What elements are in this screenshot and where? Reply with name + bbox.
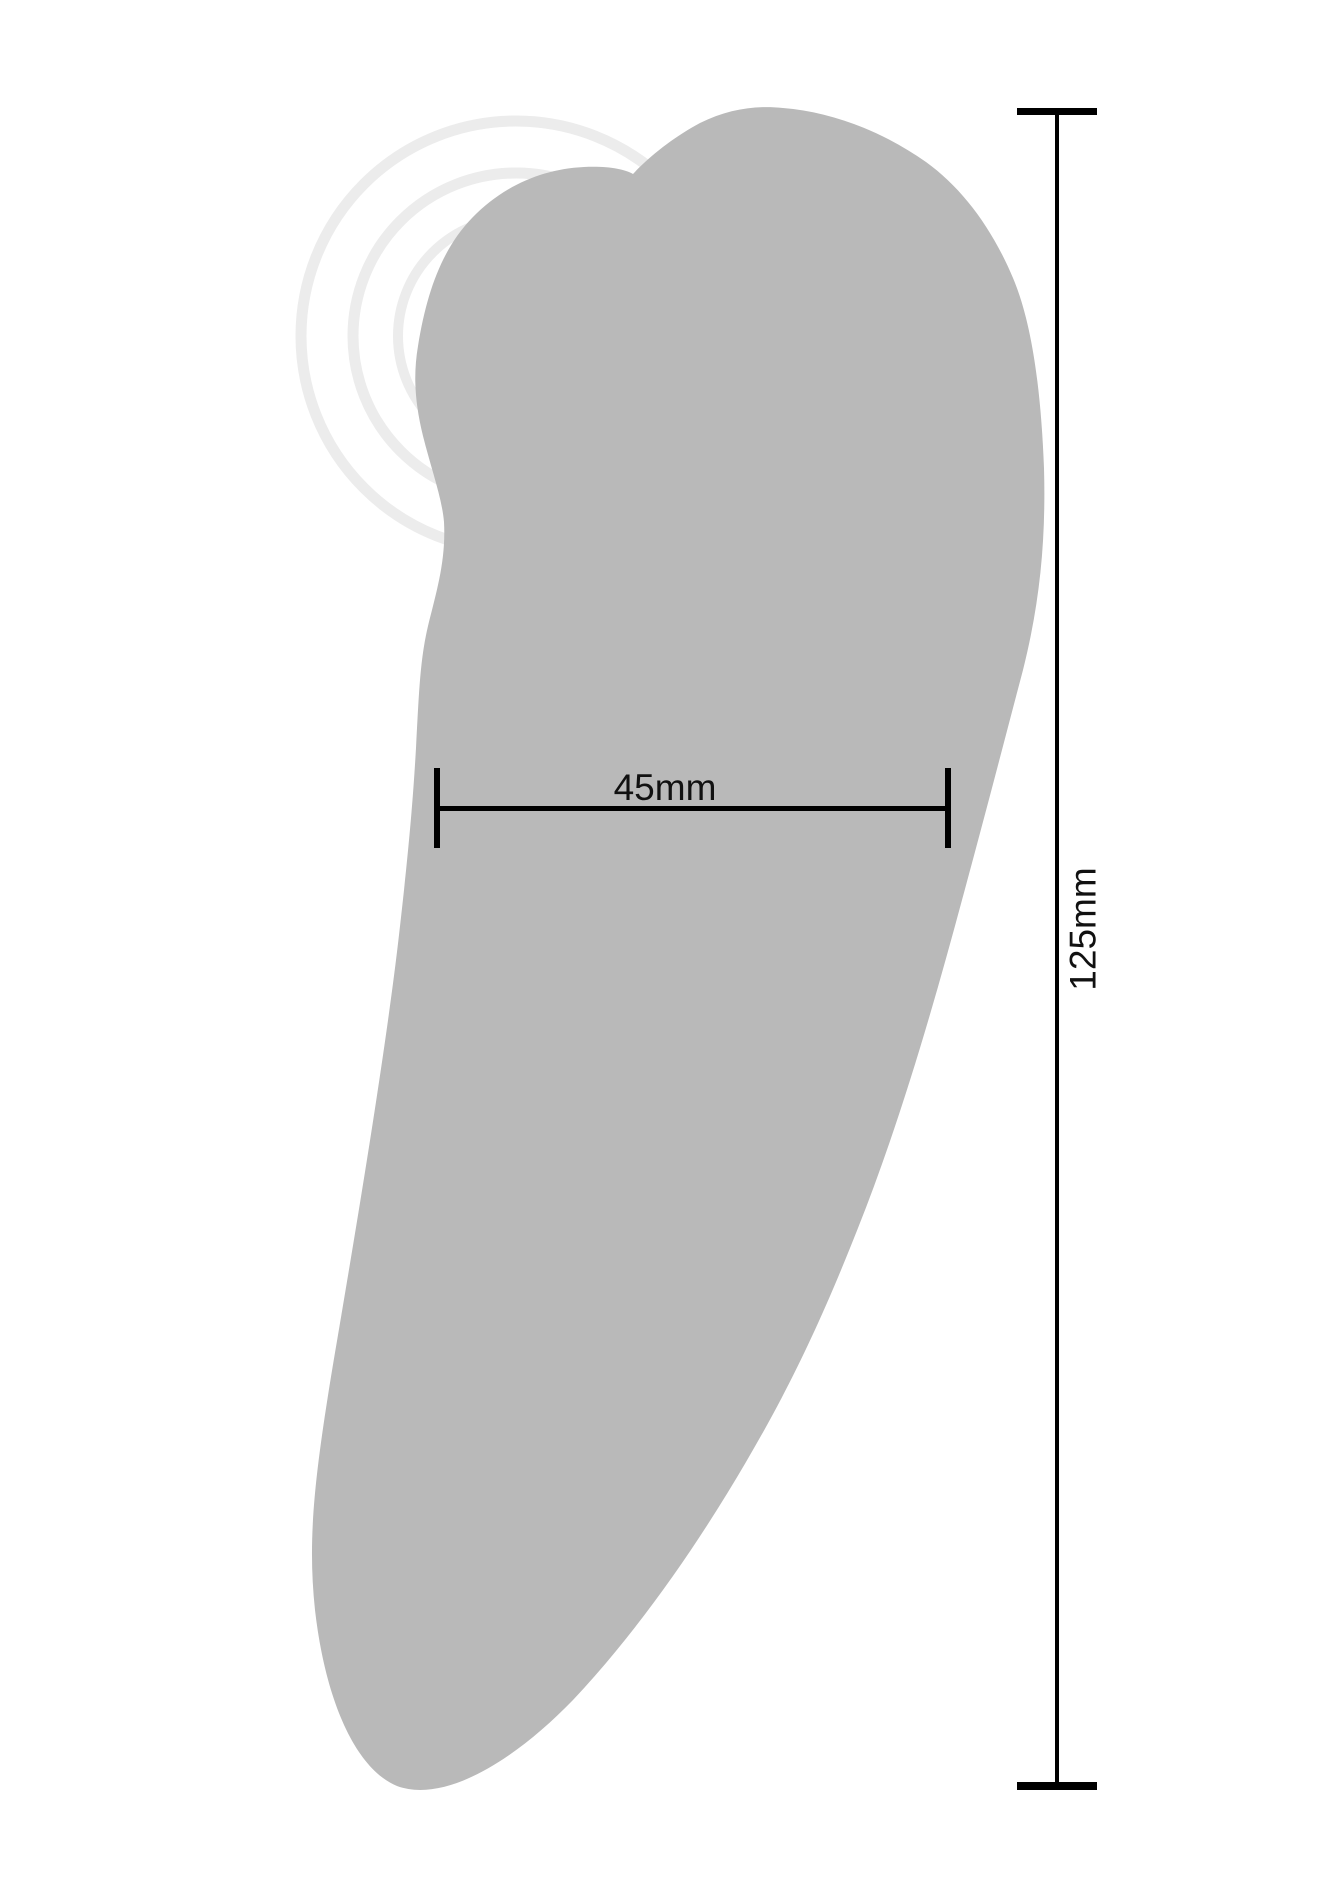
height-dimension-label: 125mm <box>1065 867 1102 990</box>
diagram-canvas: 45mm 125mm <box>0 0 1341 1900</box>
height-dimension-bar <box>1055 110 1059 1787</box>
width-dimension-label: 45mm <box>614 769 717 806</box>
product-dimension-figure <box>0 0 1341 1900</box>
product-silhouette <box>312 107 1044 1790</box>
